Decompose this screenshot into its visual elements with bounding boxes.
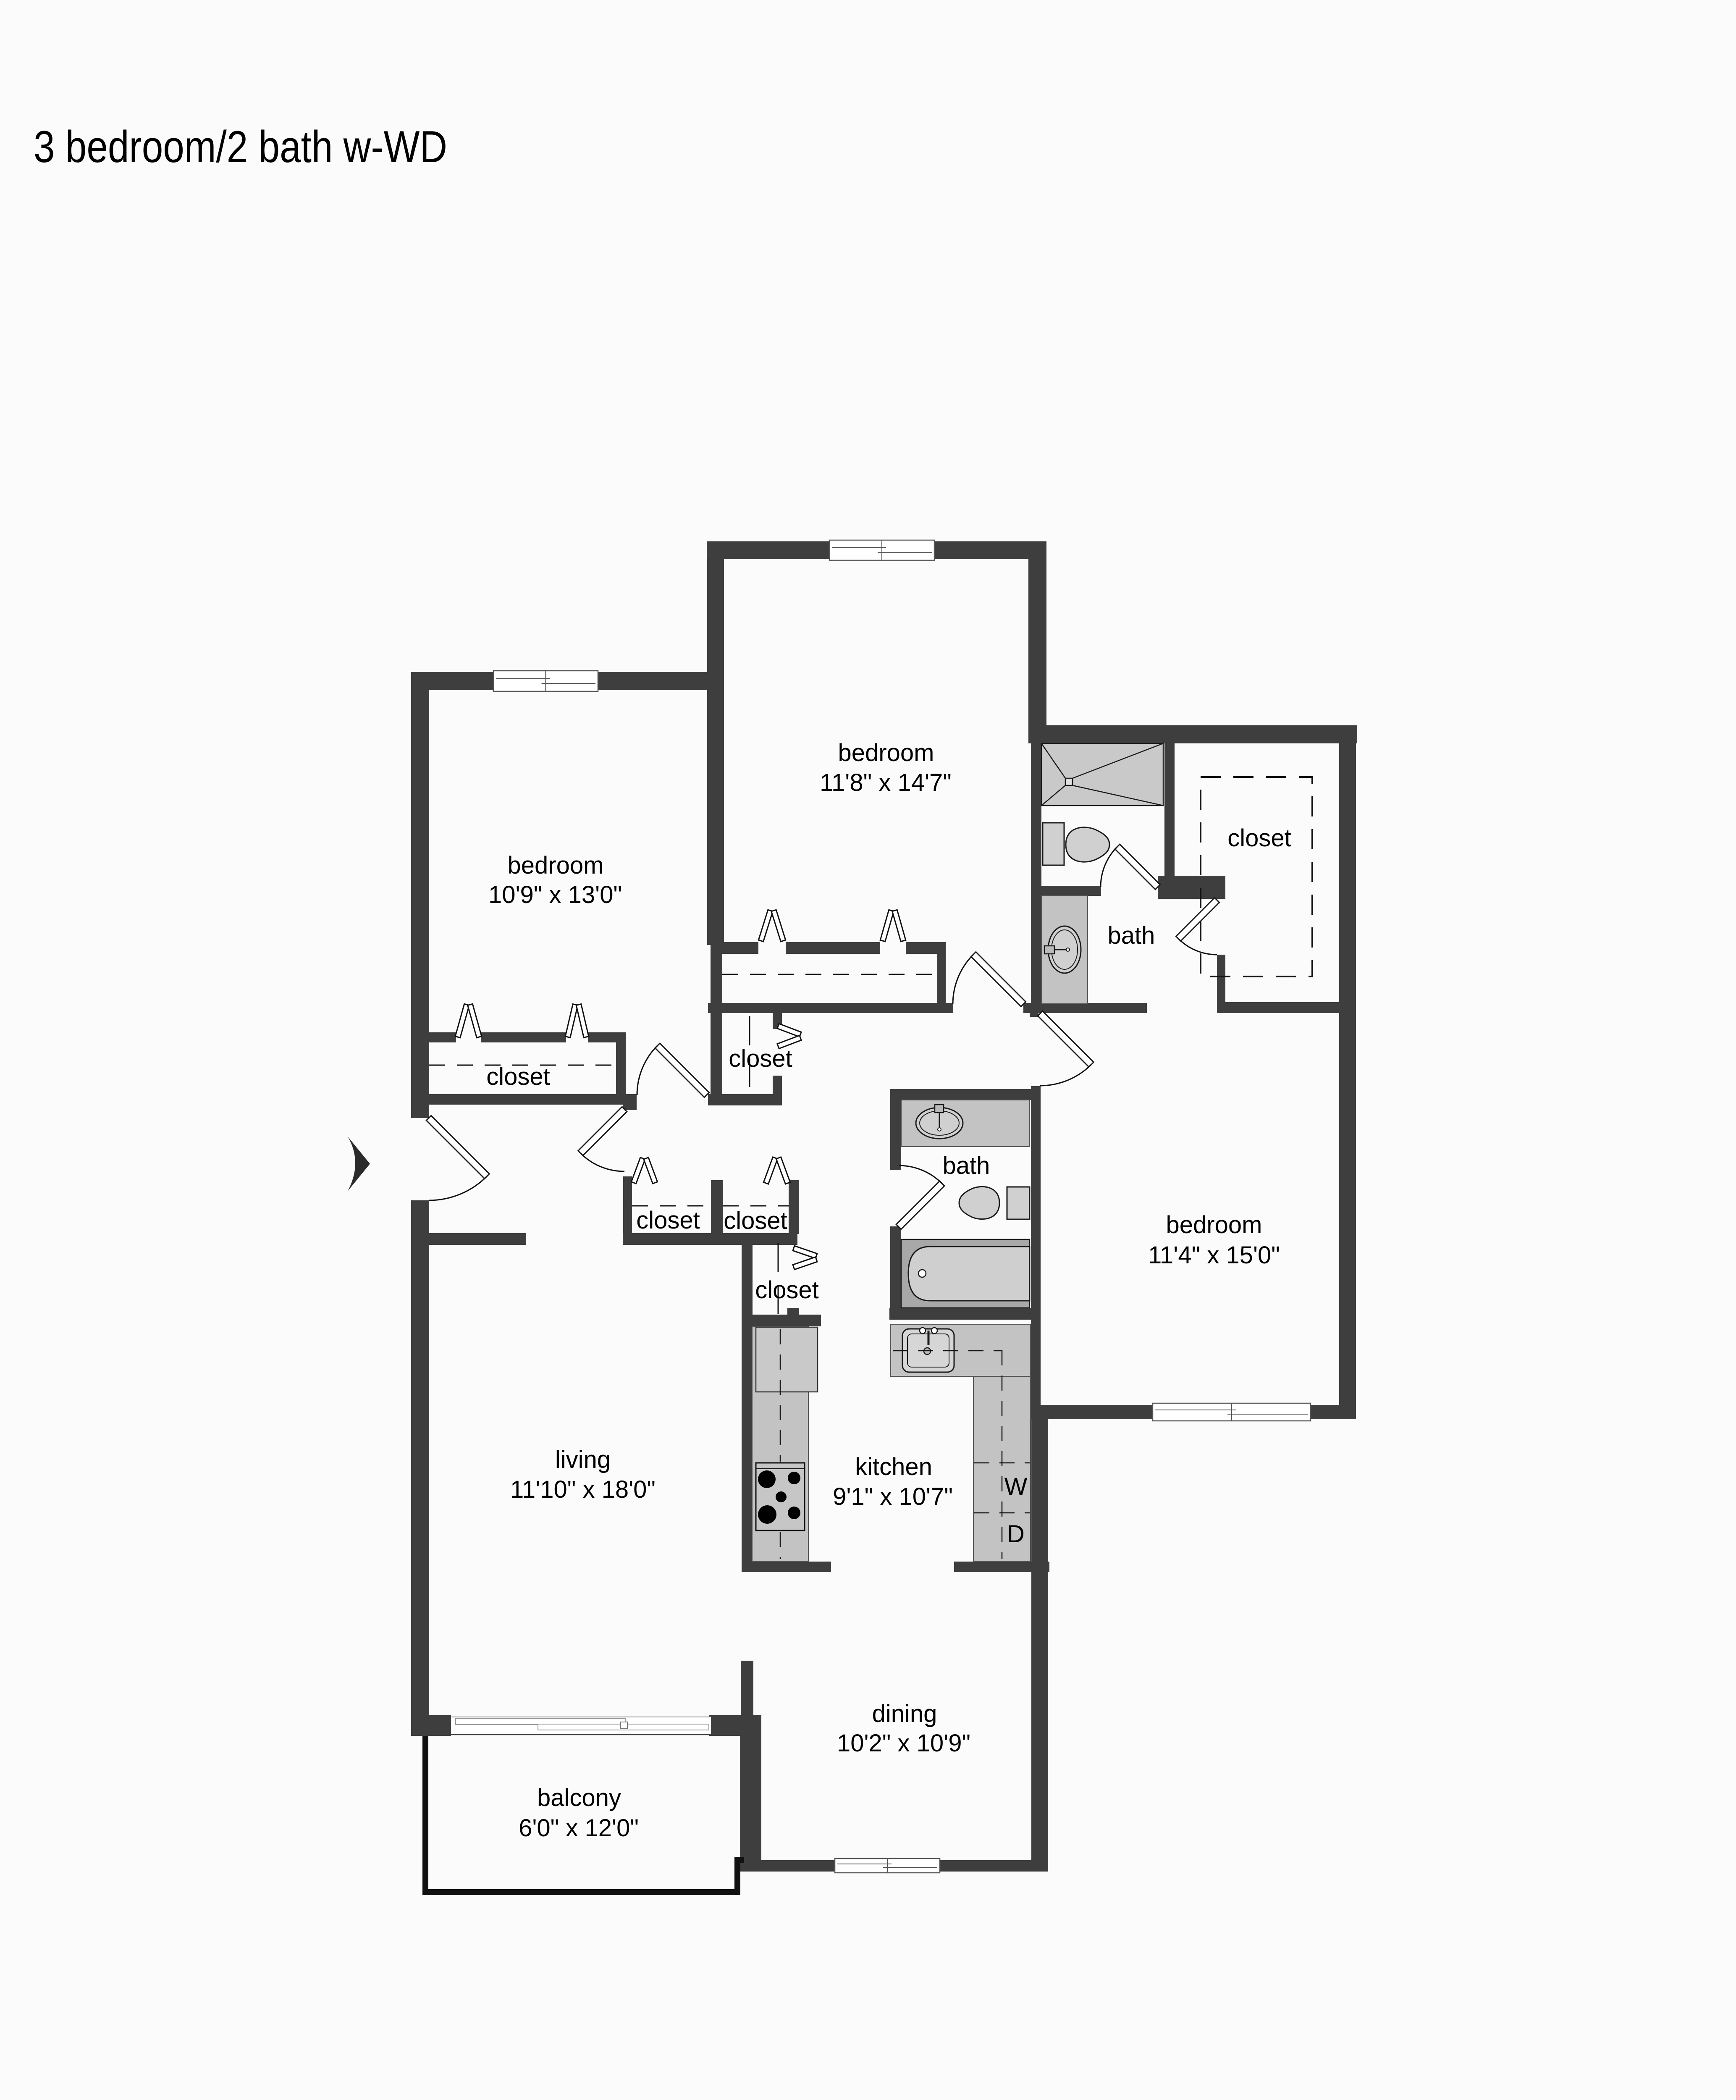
svg-text:dining: dining <box>872 1700 937 1727</box>
svg-text:closet: closet <box>486 1063 550 1090</box>
svg-text:living: living <box>555 1446 611 1473</box>
svg-text:closet: closet <box>755 1276 819 1304</box>
svg-text:bath: bath <box>1108 922 1155 949</box>
svg-text:10'2" x 10'9": 10'2" x 10'9" <box>837 1730 970 1757</box>
svg-text:D: D <box>1007 1520 1025 1548</box>
svg-text:balcony: balcony <box>537 1784 621 1811</box>
svg-text:bedroom: bedroom <box>838 739 934 766</box>
svg-text:11'8" x 14'7": 11'8" x 14'7" <box>820 769 952 796</box>
svg-text:W: W <box>1004 1473 1028 1500</box>
svg-text:kitchen: kitchen <box>855 1453 932 1480</box>
svg-text:bedroom: bedroom <box>508 852 604 879</box>
svg-text:bedroom: bedroom <box>1166 1211 1262 1239</box>
svg-text:bath: bath <box>943 1152 990 1179</box>
svg-text:9'1" x 10'7": 9'1" x 10'7" <box>833 1483 953 1510</box>
svg-text:closet: closet <box>636 1207 700 1234</box>
svg-text:closet: closet <box>1227 824 1291 852</box>
svg-text:11'10" x 18'0": 11'10" x 18'0" <box>510 1476 656 1503</box>
svg-text:10'9" x 13'0": 10'9" x 13'0" <box>488 881 622 908</box>
svg-text:closet: closet <box>724 1207 787 1234</box>
svg-text:6'0" x 12'0": 6'0" x 12'0" <box>519 1814 639 1842</box>
svg-text:closet: closet <box>729 1045 792 1072</box>
svg-text:11'4" x 15'0": 11'4" x 15'0" <box>1148 1242 1280 1269</box>
svg-text:3 bedroom/2 bath w-WD: 3 bedroom/2 bath w-WD <box>34 121 447 172</box>
